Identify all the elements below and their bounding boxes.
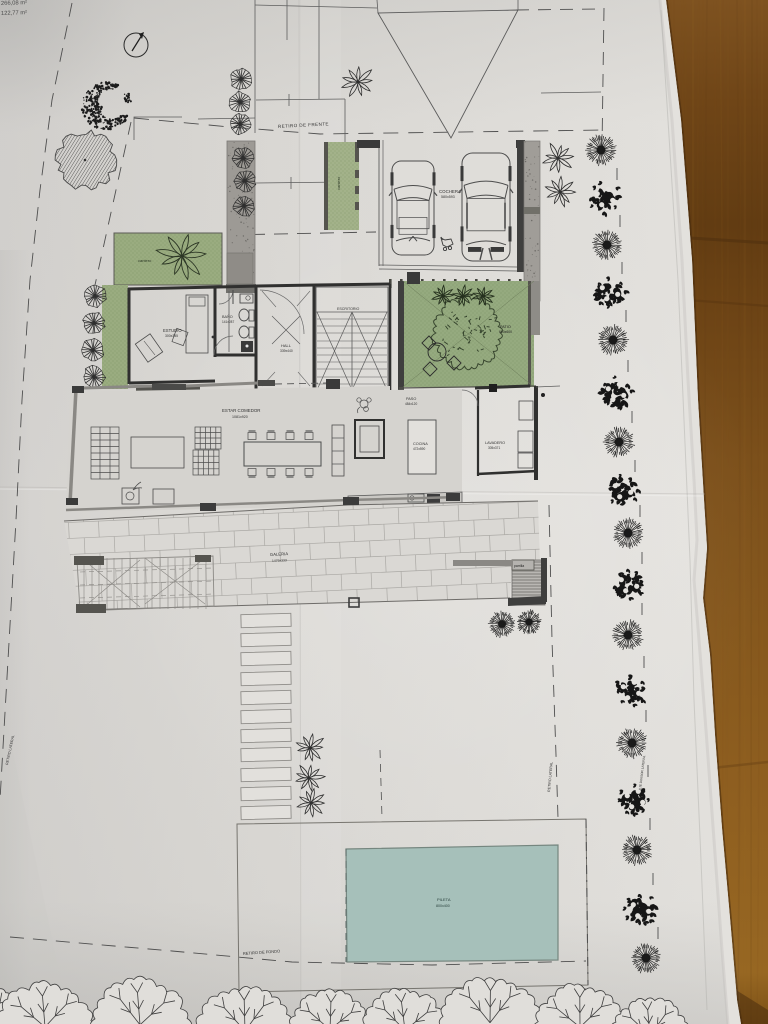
- svg-text:cantero: cantero: [336, 176, 341, 190]
- svg-text:LAVADERO: LAVADERO: [485, 441, 505, 445]
- svg-text:PASO: PASO: [406, 397, 416, 401]
- svg-text:cantero: cantero: [138, 258, 152, 263]
- svg-text:COCHERA: COCHERA: [439, 189, 461, 194]
- svg-text:300x355: 300x355: [165, 334, 178, 338]
- svg-text:141x287: 141x287: [222, 320, 234, 324]
- svg-text:472x590: 472x590: [413, 447, 425, 451]
- svg-text:1081x920: 1081x920: [232, 415, 248, 419]
- svg-text:800x400: 800x400: [436, 904, 450, 908]
- svg-text:266,08 m²: 266,08 m²: [1, 0, 27, 7]
- svg-text:GALERIA: GALERIA: [270, 551, 289, 557]
- svg-text:parrilla: parrilla: [514, 564, 524, 568]
- svg-text:122,77 m²: 122,77 m²: [1, 10, 27, 17]
- svg-text:339x440: 339x440: [280, 349, 293, 353]
- svg-text:1479x333: 1479x333: [272, 558, 287, 563]
- svg-text:PATIO: PATIO: [500, 325, 511, 329]
- svg-text:580x593: 580x593: [441, 195, 455, 199]
- svg-text:600x600: 600x600: [499, 330, 512, 334]
- svg-text:484x120: 484x120: [405, 402, 417, 406]
- svg-text:ESCRITORIO: ESCRITORIO: [337, 307, 360, 311]
- svg-text:305x371: 305x371: [488, 446, 500, 450]
- svg-text:COCINA: COCINA: [413, 442, 428, 446]
- svg-text:ESTUDIO: ESTUDIO: [163, 328, 182, 333]
- svg-text:PILETA: PILETA: [437, 897, 451, 902]
- svg-text:BAÑO: BAÑO: [222, 314, 233, 319]
- svg-text:HALL: HALL: [281, 343, 292, 348]
- svg-text:ESTAR COMEDOR: ESTAR COMEDOR: [222, 408, 260, 413]
